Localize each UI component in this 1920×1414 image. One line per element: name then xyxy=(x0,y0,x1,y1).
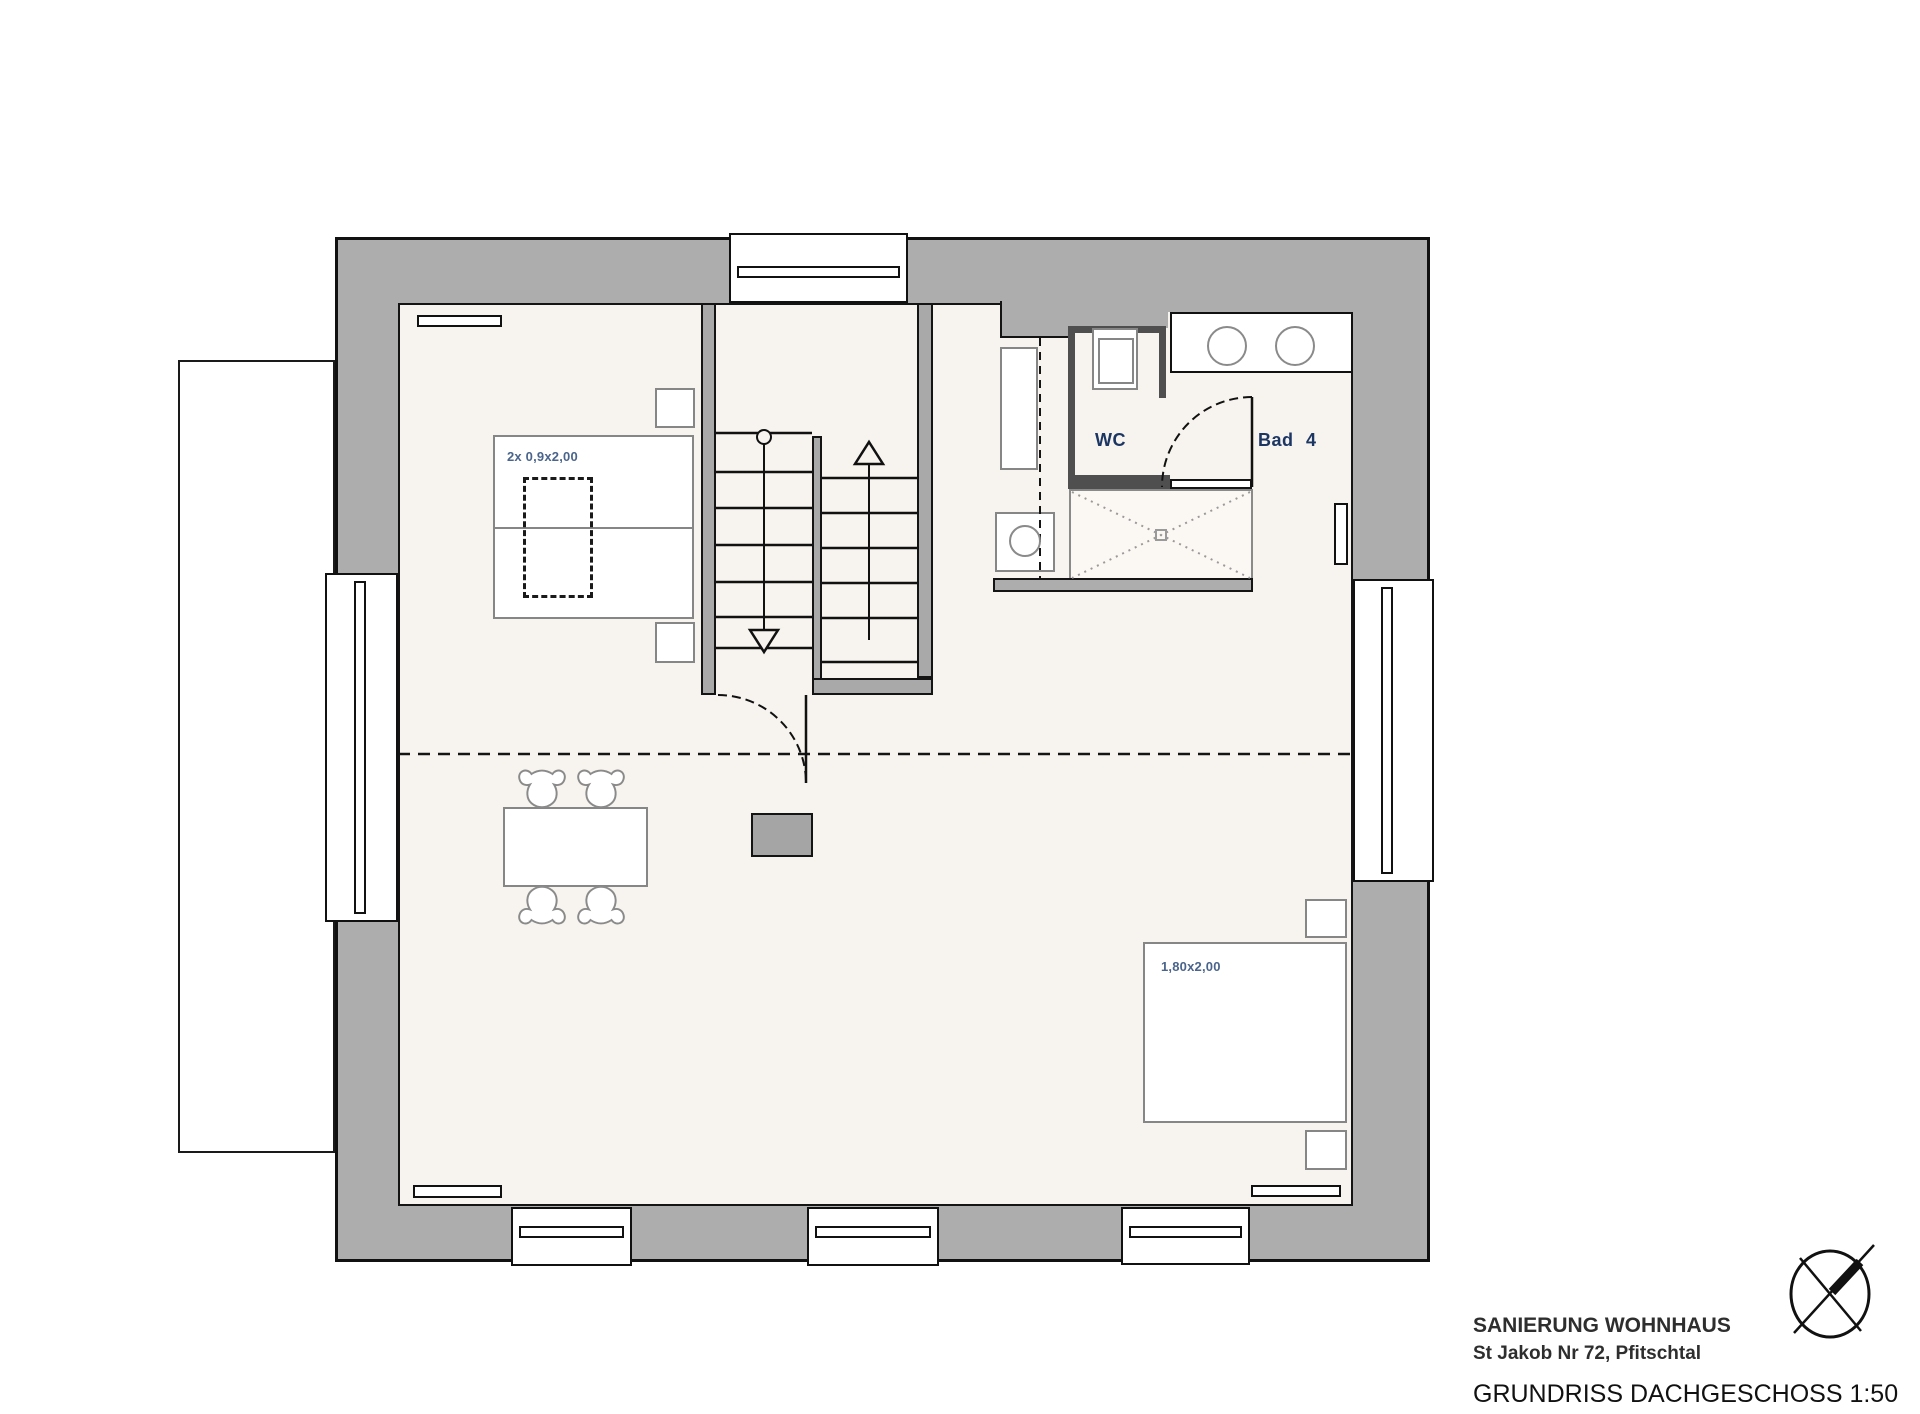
north-arrow-icon xyxy=(1791,1245,1874,1337)
window-north-glass xyxy=(737,266,900,278)
wall-patch-above-wc xyxy=(1066,301,1168,328)
wc-wall-left xyxy=(1068,326,1075,489)
stairwell-wall-right xyxy=(917,303,933,678)
bed-dimension-label-small: 2x 0,9x2,00 xyxy=(507,449,578,464)
wc-wall-bottom xyxy=(1068,475,1170,489)
nightstand xyxy=(655,388,695,428)
vanity-counter xyxy=(1170,312,1353,373)
window-south-2-glass xyxy=(815,1226,931,1238)
wall-vent xyxy=(417,315,502,327)
annex-outline xyxy=(178,360,335,1153)
stairwell-stringer-wall xyxy=(812,436,822,695)
wall-patch-above-vanity xyxy=(1166,301,1353,312)
toilet-bowl xyxy=(1098,338,1134,384)
stairwell-wall-bottom xyxy=(812,678,933,695)
wall-band-south-of-shower xyxy=(993,578,1253,592)
stairwell-wall-left xyxy=(701,303,716,695)
chimney-block xyxy=(751,813,813,857)
towel-radiator xyxy=(1334,503,1348,565)
floor-plan-canvas: WC Bad 4 2x 0,9x2,00 1,80x2,00 SANIERUNG… xyxy=(0,0,1920,1414)
window-east-glass xyxy=(1381,587,1393,874)
dining-table xyxy=(503,807,648,887)
wc-wall-right xyxy=(1159,326,1166,398)
window-east xyxy=(1353,579,1434,882)
washing-machine xyxy=(995,512,1055,572)
title-drawing-name: GRUNDRISS DACHGESCHOSS 1:50 xyxy=(1473,1380,1898,1409)
wall-vent xyxy=(413,1185,502,1198)
bath-door-threshold xyxy=(1170,479,1252,489)
window-south-3-glass xyxy=(1129,1226,1242,1238)
title-project: SANIERUNG WOHNHAUS xyxy=(1473,1314,1731,1338)
bed-dimension-label-large: 1,80x2,00 xyxy=(1161,959,1221,974)
wall-vent xyxy=(1251,1185,1341,1197)
alcove-cabinet xyxy=(1000,347,1038,470)
window-south-1-glass xyxy=(519,1226,624,1238)
nightstand xyxy=(655,622,695,663)
window-west-glass xyxy=(354,581,366,914)
room-label-bad: Bad 4 xyxy=(1258,430,1317,451)
nightstand xyxy=(1305,899,1347,938)
title-address: St Jakob Nr 72, Pfitschtal xyxy=(1473,1343,1701,1365)
room-label-wc: WC xyxy=(1095,430,1126,451)
wall-notch-above-alcove xyxy=(1000,301,1068,338)
roof-window-dashed-outline xyxy=(523,477,593,598)
nightstand xyxy=(1305,1130,1347,1170)
shower-tray xyxy=(1069,489,1253,581)
